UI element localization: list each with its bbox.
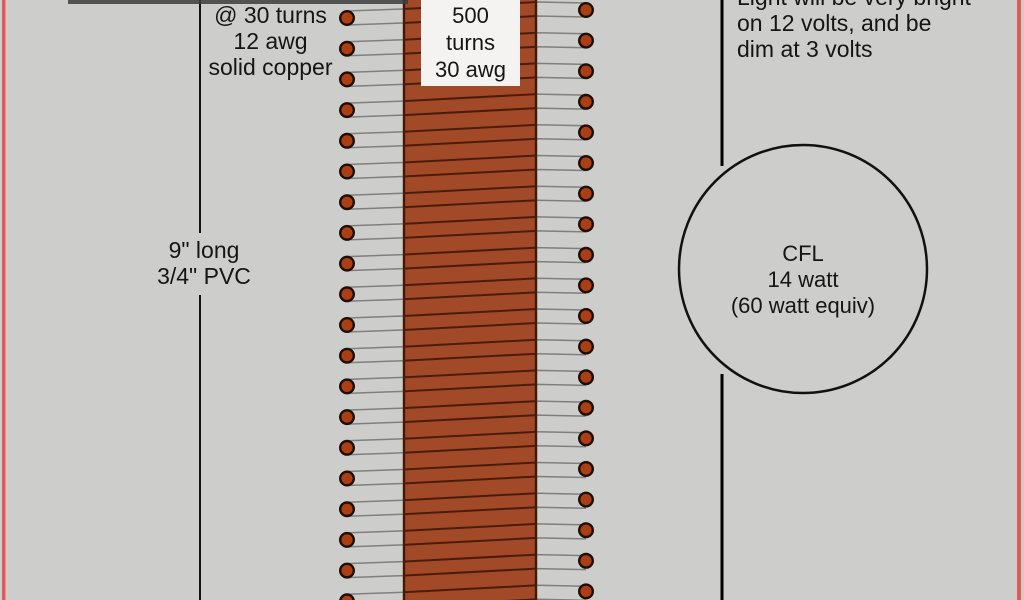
wire-dot (340, 257, 354, 271)
wire-dot (340, 502, 354, 516)
wire-dot (579, 95, 593, 109)
wire-dot (579, 126, 593, 140)
wire-dot (340, 288, 354, 302)
wire-dot (340, 441, 354, 455)
cfl-bulb-label: CFL 14 watt (60 watt equiv) (703, 241, 903, 319)
wire-dot (340, 410, 354, 424)
wire-dot (579, 309, 593, 323)
wire-dot (340, 226, 354, 240)
wire-cross-section-dots-left (340, 11, 354, 600)
wire-dot (579, 462, 593, 476)
wire-dot (340, 533, 354, 547)
wire-dot (579, 279, 593, 293)
wire-dot (579, 523, 593, 537)
coil-diagram-canvas: @ 30 turns 12 awg solid copper 500 turns… (0, 0, 1024, 600)
right-red-border (1017, 0, 1021, 600)
wire-dot (340, 595, 354, 600)
wire-dot (579, 187, 593, 201)
wire-dot (579, 493, 593, 507)
coil-label-box: 500 turns 30 awg (421, 0, 520, 86)
wire-dot (340, 349, 354, 363)
wire-dot (579, 156, 593, 170)
wire-dot (579, 217, 593, 231)
pvc-pipe-label: 9" long 3/4" PVC (124, 237, 284, 289)
wire-dot (579, 340, 593, 354)
wire-dot (579, 248, 593, 262)
wire-dot (579, 554, 593, 568)
wire-dot (579, 3, 593, 17)
wire-dot (579, 34, 593, 48)
wire-dot (340, 103, 354, 117)
wire-dot (340, 318, 354, 332)
wire-dot (579, 401, 593, 415)
wire-dot (579, 432, 593, 446)
wire-dot (340, 134, 354, 148)
wire-dot (340, 380, 354, 394)
wire-dot (579, 585, 593, 599)
wire-dot (579, 64, 593, 78)
brightness-note-label: Light will be very bright on 12 volts, a… (737, 0, 1007, 62)
left-red-border (2, 0, 6, 600)
primary-winding-label: @ 30 turns 12 awg solid copper (188, 2, 353, 80)
wire-cross-section-dots-right (579, 3, 593, 598)
wire-dot (340, 472, 354, 486)
wire-dot (340, 165, 354, 179)
wire-dot (340, 564, 354, 578)
wire-dot (340, 195, 354, 209)
wire-dot (579, 370, 593, 384)
